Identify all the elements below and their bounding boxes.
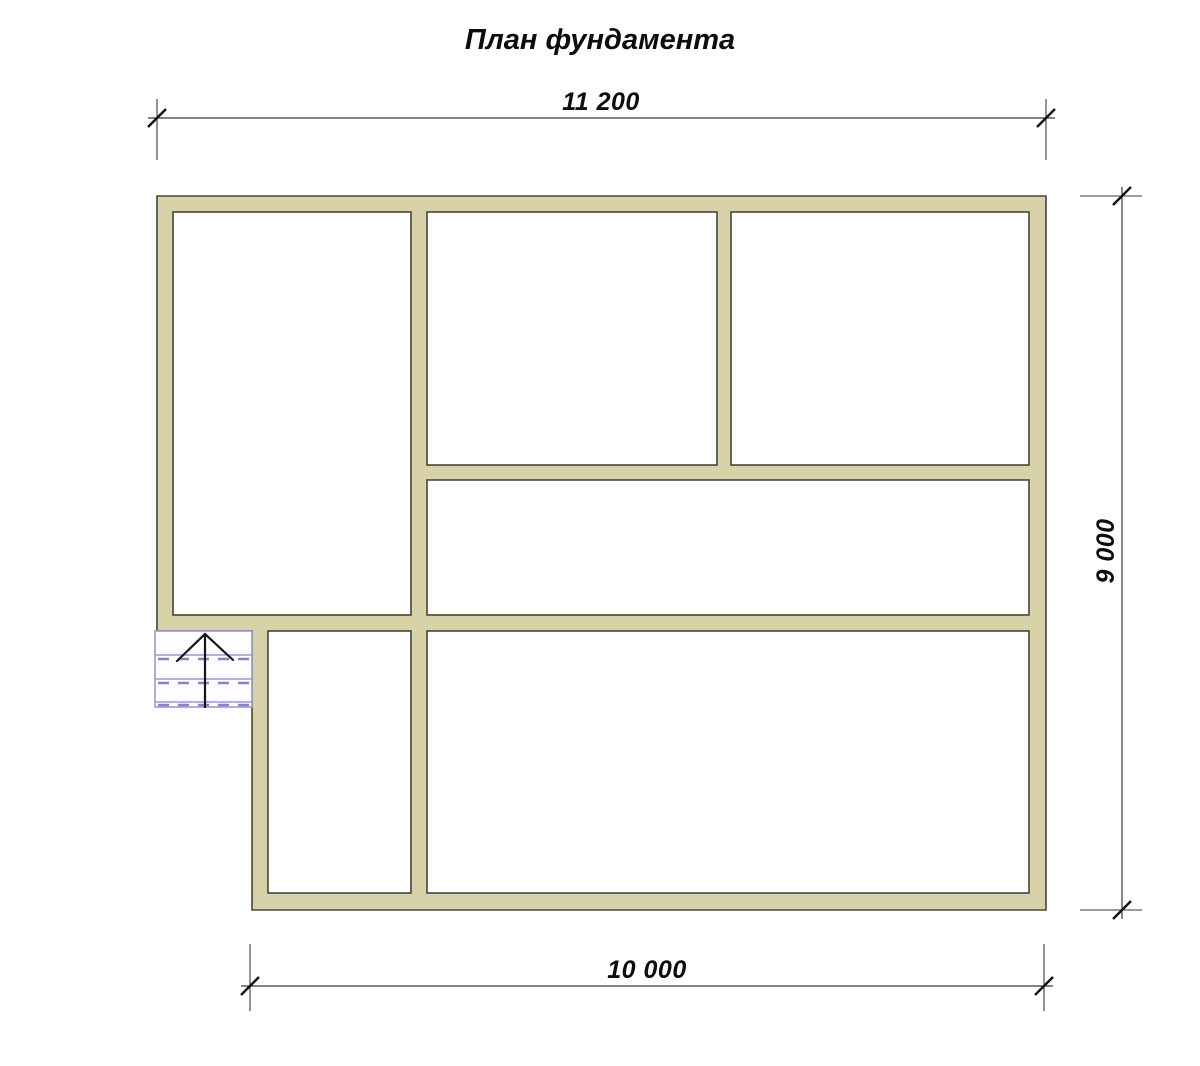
dimension-top-label: 11 200: [562, 88, 640, 116]
page-title: План фундамента: [465, 24, 735, 56]
stair-outline: [155, 631, 252, 707]
room-top-right: [731, 212, 1029, 465]
plan-svg: План фундамента: [0, 0, 1200, 1066]
room-top-middle: [427, 212, 717, 465]
dimension-bottom: 10 000: [241, 944, 1053, 1011]
room-left-tall: [173, 212, 411, 615]
dimension-top: 11 200: [148, 88, 1055, 160]
dimension-right-label: 9 000: [1092, 518, 1120, 583]
entrance-stairs: [155, 631, 252, 707]
room-bottom-left: [268, 631, 411, 893]
room-bottom-large: [427, 631, 1029, 893]
dimension-right: 9 000: [1080, 187, 1142, 919]
foundation-plan-drawing: План фундамента: [0, 0, 1200, 1066]
room-middle-strip: [427, 480, 1029, 615]
dimension-bottom-label: 10 000: [607, 956, 686, 984]
